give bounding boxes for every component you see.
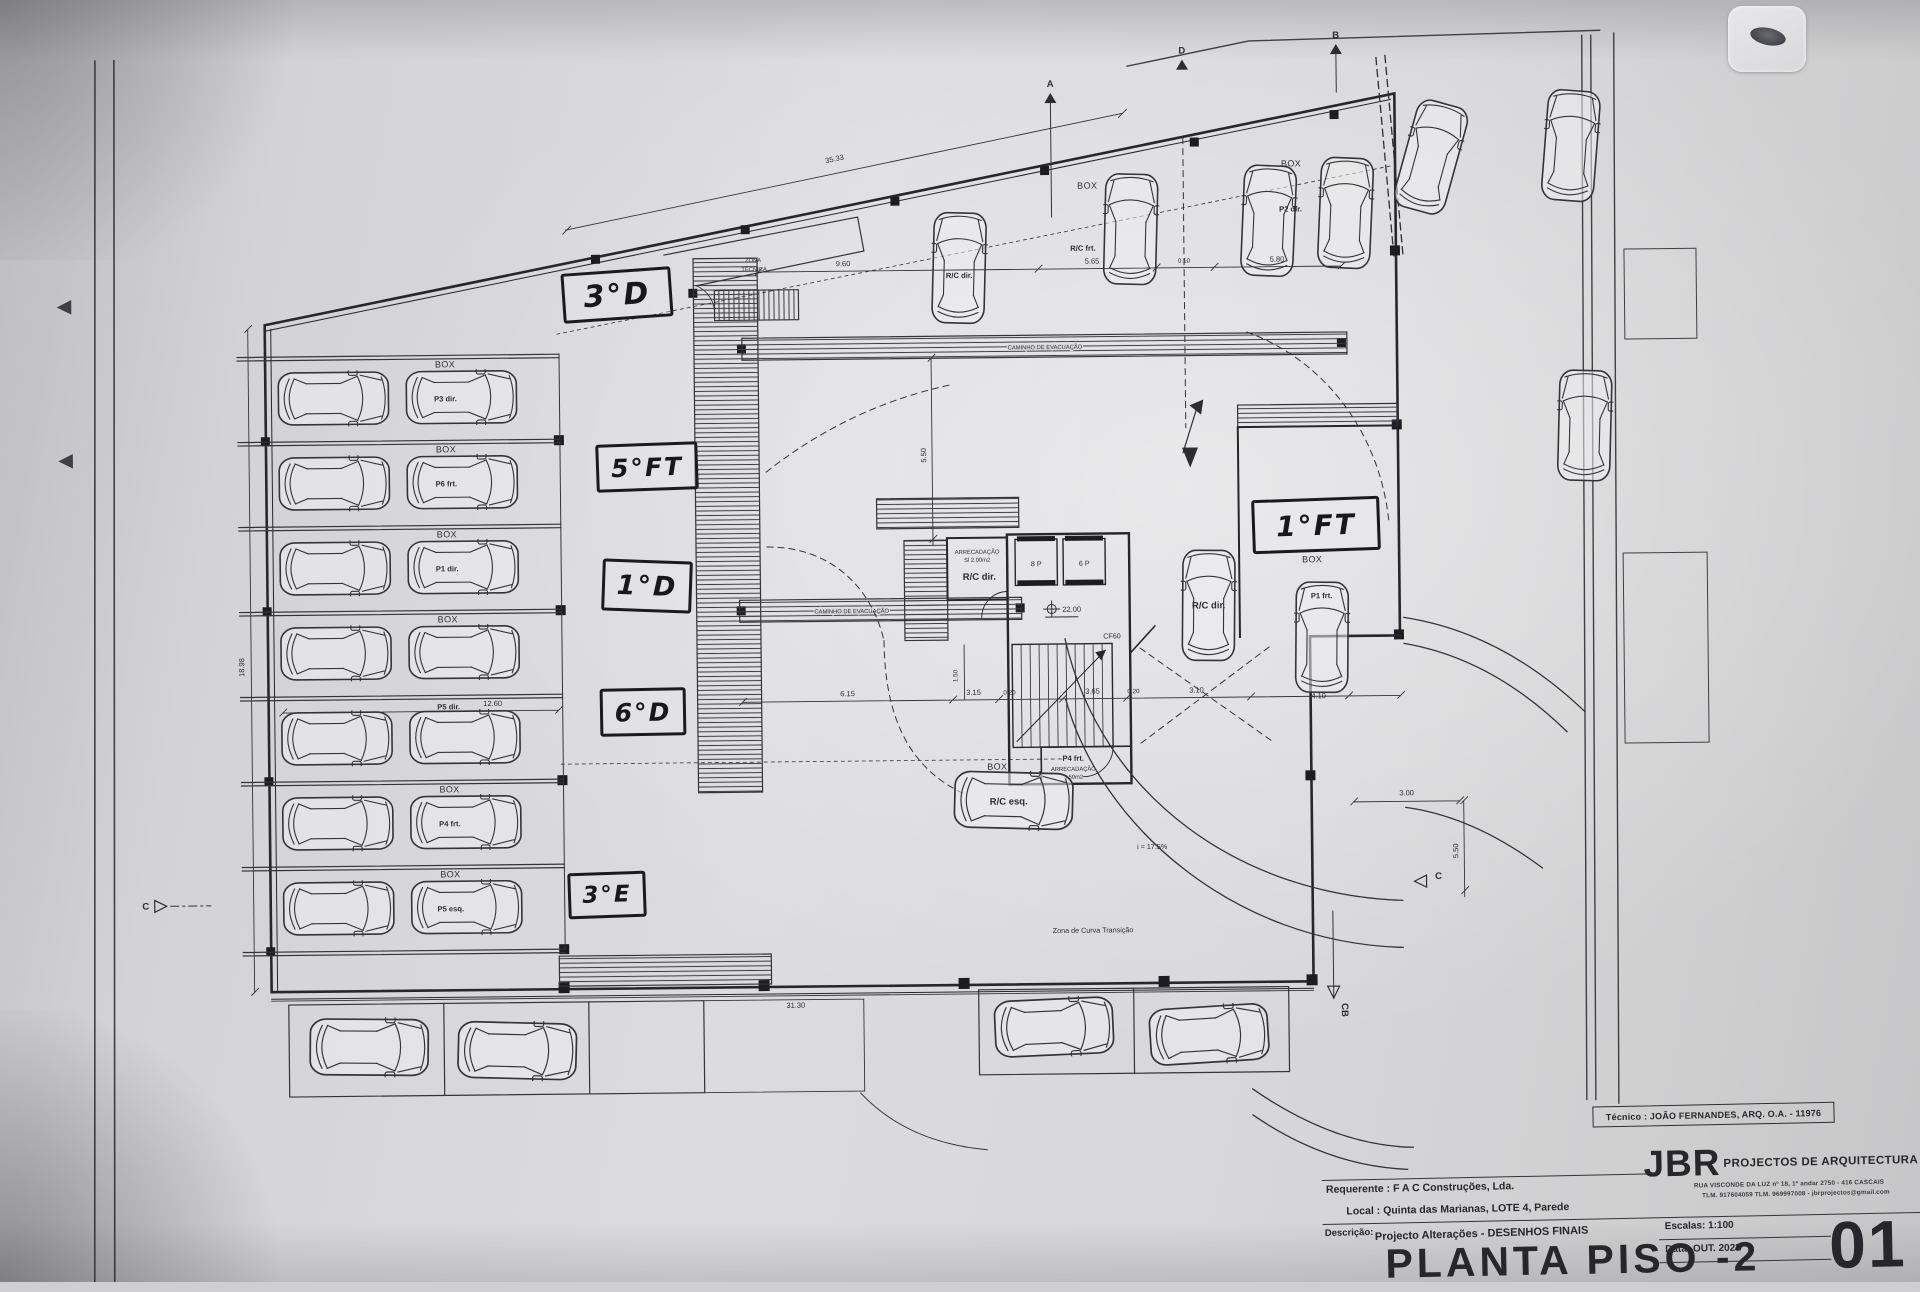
car-top-view	[409, 623, 520, 682]
level-value: 22.00	[1062, 605, 1081, 614]
requerente-label: Requerente :	[1326, 1183, 1390, 1196]
section-marker-c-right: C	[1435, 871, 1442, 882]
binder-clip-hole	[1749, 24, 1788, 48]
car-top-view	[282, 709, 393, 768]
car-top-view	[994, 993, 1115, 1060]
parked-cars	[275, 88, 1622, 1086]
dim-18-98: 18.98	[237, 658, 246, 677]
dim-3-15: 3.15	[966, 688, 981, 697]
car-top-view	[283, 879, 394, 938]
escalas-row: Escalas: 1:100	[1665, 1220, 1734, 1232]
box-label: BOX	[987, 762, 1007, 772]
p4-frt-label: P4 frt.	[1062, 754, 1084, 763]
firm-contact: TLM. 917604059 TLM. 969997008 - jbrproje…	[1702, 1189, 1890, 1200]
central-core	[947, 533, 1157, 785]
photographed-plan-sheet: CAMINHO DE EVACUAÇÃO CAMINHO DE EVACUAÇÃ…	[0, 0, 1920, 1282]
row-p-label: P4 frt.	[439, 819, 461, 828]
sheet-frame-left	[56, 61, 127, 1282]
box-label: BOX	[436, 444, 456, 454]
row-p-label: P6 frt.	[436, 479, 458, 488]
car-top-view	[281, 624, 392, 683]
box-label: BOX	[437, 529, 457, 539]
sheet-number: 01	[1828, 1210, 1907, 1278]
door-cf60-label: CF60	[1103, 631, 1121, 640]
drawing-title: PLANTA PISO -2	[1385, 1233, 1761, 1288]
car-top-view	[310, 1016, 428, 1079]
tecnico-box: Técnico : JOÃO FERNANDES, ARQ. O.A. - 11…	[1592, 1102, 1834, 1128]
storage-rc-dir-label: R/C dir.	[963, 572, 996, 583]
requerente-row: Requerente : F A C Construções, Lda.	[1326, 1180, 1514, 1196]
rc-dir-mid-label: R/C dir.	[1192, 600, 1225, 611]
dim-0-20-b: 0.20	[1127, 688, 1140, 695]
firm-initials: JBR	[1643, 1144, 1721, 1183]
car-top-view	[283, 794, 394, 853]
car-top-view	[280, 539, 391, 598]
curve-zone-label: Zona de Curva Transição	[1053, 925, 1134, 935]
car-top-view	[411, 878, 522, 937]
dim-3-65: 3.65	[1085, 687, 1100, 696]
zona-tecnica-label-1: ZONA	[745, 258, 761, 264]
evacuation-path-label-mid: CAMINHO DE EVACUAÇÃO	[814, 608, 889, 616]
dim-0-10: 0.10	[1178, 258, 1191, 265]
local-label: Local :	[1346, 1205, 1380, 1218]
car-top-view	[406, 368, 517, 427]
firm-address: RUA VISCONDE DA LUZ nº 18, 1º andar 2750…	[1694, 1179, 1884, 1190]
storage-small-area: Sl 2.00m2	[964, 558, 990, 564]
handwritten-label-1d: 1°D	[601, 558, 693, 613]
tecnico-text: Técnico : JOÃO FERNANDES, ARQ. O.A. - 11…	[1606, 1107, 1821, 1121]
row-p-label: P5 esq.	[437, 904, 464, 913]
car-top-view	[929, 212, 990, 323]
title-block: Técnico : JOÃO FERNANDES, ARQ. O.A. - 11…	[1320, 1092, 1920, 1288]
section-marker-cb: CB	[1339, 1003, 1350, 1017]
car-top-view	[1314, 157, 1377, 269]
floor-plan-drawing: CAMINHO DE EVACUAÇÃO CAMINHO DE EVACUAÇÃ…	[0, 0, 1920, 1282]
rc-esq-label: R/C esq.	[990, 796, 1028, 807]
car-top-view	[1237, 165, 1300, 277]
handwritten-label-6d: 6°D	[600, 687, 687, 736]
descricao-label: Descrição:	[1325, 1227, 1374, 1239]
car-top-view	[1554, 370, 1615, 481]
dim-0-20-a: 0.20	[1003, 689, 1016, 696]
firm-name: PROJECTOS DE ARQUITECTURA	[1723, 1154, 1918, 1170]
handwritten-label-5ft: 5°FT	[595, 441, 699, 493]
box-label: BOX	[440, 869, 460, 879]
section-marker-a: A	[1047, 79, 1054, 90]
row-p-label: P1 dir.	[436, 564, 459, 573]
local-row: Local : Quinta das Marianas, LOTE 4, Par…	[1346, 1201, 1569, 1217]
car-top-view	[1388, 96, 1473, 217]
car-top-view	[411, 793, 522, 852]
box-label: BOX	[1281, 158, 1301, 168]
box-label: BOX	[439, 784, 459, 794]
handwritten-label-3e: 3°E	[567, 871, 647, 920]
storage-large-label: ARRECADAÇÃO	[1051, 766, 1096, 773]
car-top-view	[407, 453, 518, 512]
road-curves	[856, 615, 1590, 1175]
requerente-value: F A C Construções, Lda.	[1393, 1180, 1514, 1194]
dim-9-60: 9.60	[836, 259, 851, 268]
slope-label: i = 17.5%	[1137, 842, 1168, 851]
dim-5-65: 5.65	[1085, 257, 1100, 266]
dim-35-33: 35.33	[824, 152, 844, 165]
car-top-view	[1538, 89, 1604, 203]
rc-frt-label: R/C frt.	[1070, 244, 1095, 253]
car-top-view	[458, 1018, 577, 1083]
storage-small-label: ARRECADAÇÃO	[955, 549, 1000, 556]
car-top-view	[408, 538, 519, 597]
car-top-view	[278, 369, 389, 428]
section-marker-d: D	[1178, 46, 1185, 57]
dim-1-50: 1.50	[952, 669, 959, 682]
box-label: BOX	[1077, 181, 1097, 191]
box-label: BOX	[1302, 554, 1322, 564]
p2-dir-label: P2 dir.	[1279, 204, 1302, 213]
box-label: BOX	[438, 614, 458, 624]
elevator-8p-label: 8 P	[1031, 559, 1042, 568]
escalas-value: 1:100	[1708, 1220, 1734, 1232]
section-marker-b: B	[1332, 30, 1339, 41]
dim-31-30: 31.30	[786, 1001, 805, 1010]
box-label: BOX	[435, 359, 455, 369]
p1-frt-label: P1 frt.	[1311, 591, 1333, 600]
car-top-view	[279, 454, 390, 513]
evacuation-path-label-top: CAMINHO DE EVACUAÇÃO	[1008, 344, 1083, 352]
dim-5-80: 5.80	[1270, 255, 1285, 264]
dim-5-50-left: 5.50	[919, 448, 928, 463]
elevator-6p-label: 6 P	[1079, 559, 1090, 568]
local-value: Quinta das Marianas, LOTE 4, Parede	[1383, 1201, 1569, 1217]
dim-3-00: 3.00	[1399, 788, 1414, 797]
dim-6-15: 6.15	[840, 689, 855, 698]
car-top-view	[410, 708, 521, 767]
dim-3-10: 3.10	[1189, 685, 1204, 694]
binder-clip	[1728, 6, 1806, 72]
direction-arrow	[1182, 447, 1198, 467]
dim-5-50-right: 5.50	[1451, 843, 1460, 858]
rc-dir-top-label: R/C dir.	[946, 271, 973, 280]
escalas-label: Escalas:	[1665, 1220, 1706, 1232]
handwritten-label-1ft: 1°FT	[1251, 496, 1381, 554]
row-p-label: P5 dir.	[437, 702, 460, 711]
section-marker-c-left: C	[142, 902, 149, 913]
dim-12-60: 12.60	[483, 699, 502, 708]
row-p-label: P3 dir.	[434, 394, 457, 403]
car-top-view	[1148, 1000, 1270, 1069]
handwritten-label-3d: 3°D	[560, 266, 673, 324]
